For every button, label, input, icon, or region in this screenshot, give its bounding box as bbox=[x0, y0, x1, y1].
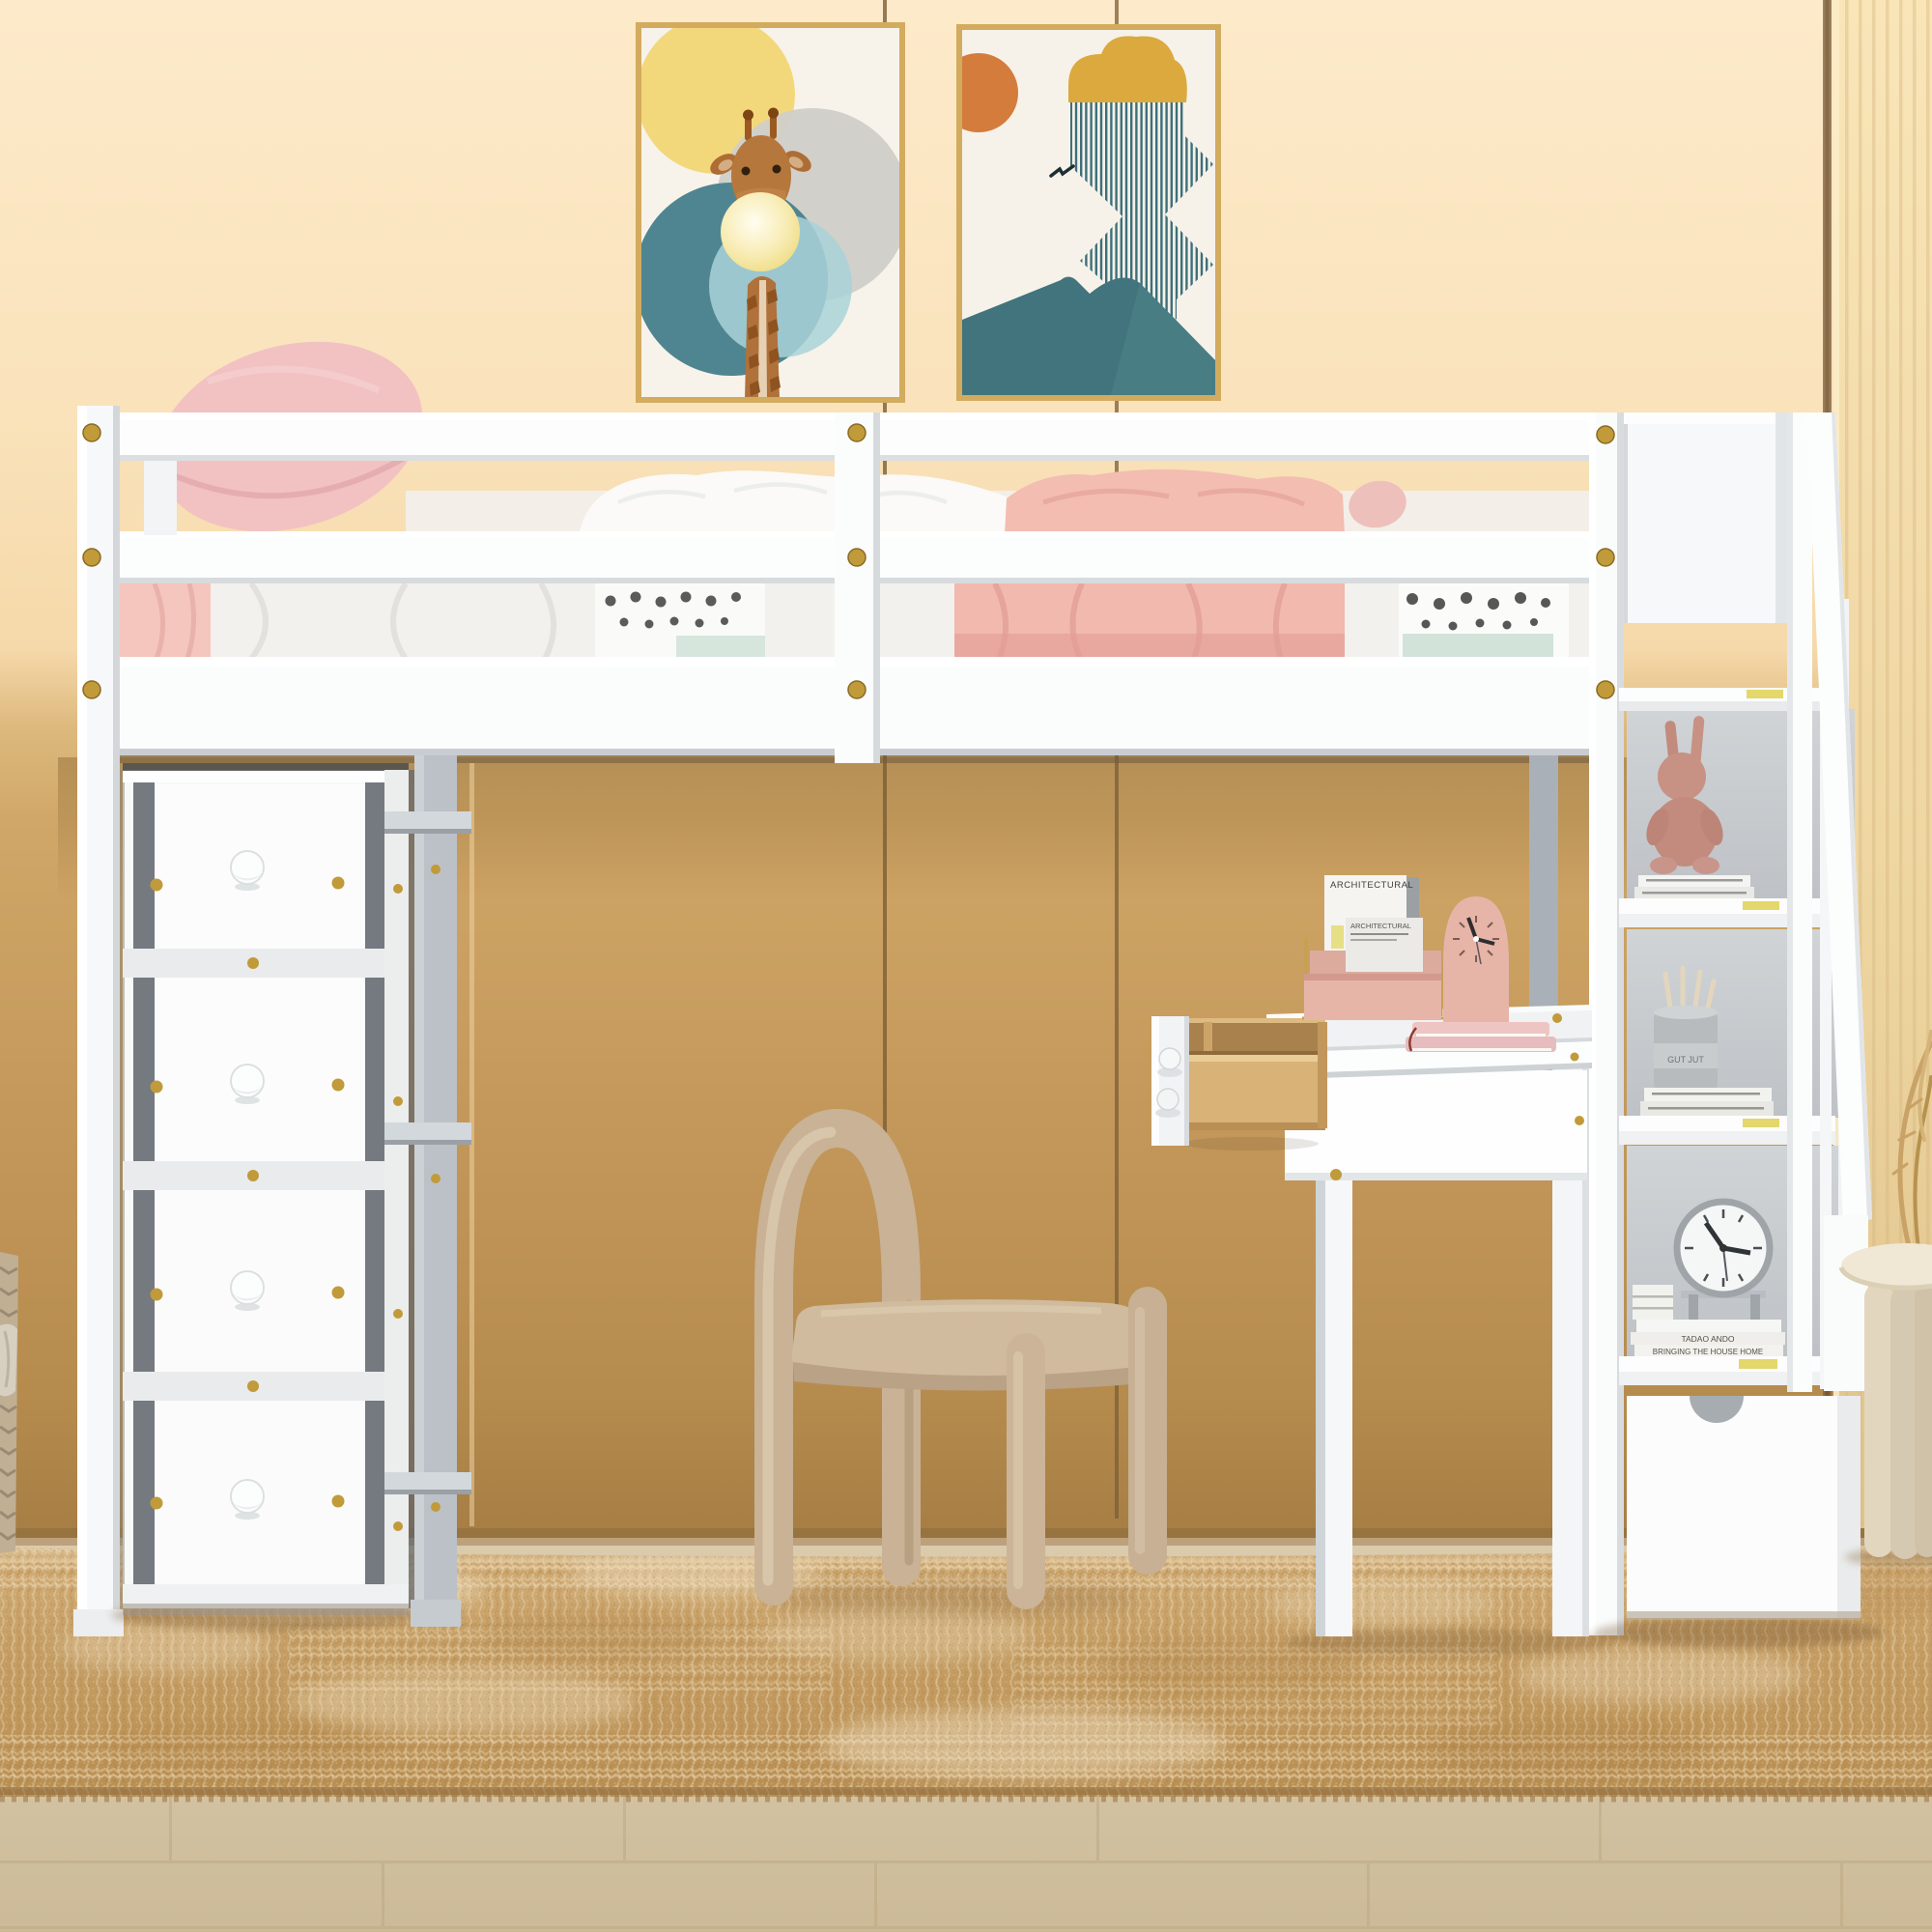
svg-text:BRINGING THE HOUSE HOME: BRINGING THE HOUSE HOME bbox=[1653, 1348, 1764, 1356]
svg-text:ARCHITECTURAL: ARCHITECTURAL bbox=[1330, 880, 1413, 891]
svg-text:GUT JUT: GUT JUT bbox=[1667, 1055, 1704, 1065]
svg-text:ARCHITECTURAL: ARCHITECTURAL bbox=[1350, 922, 1411, 930]
svg-text:TADAO ANDO: TADAO ANDO bbox=[1681, 1334, 1734, 1344]
